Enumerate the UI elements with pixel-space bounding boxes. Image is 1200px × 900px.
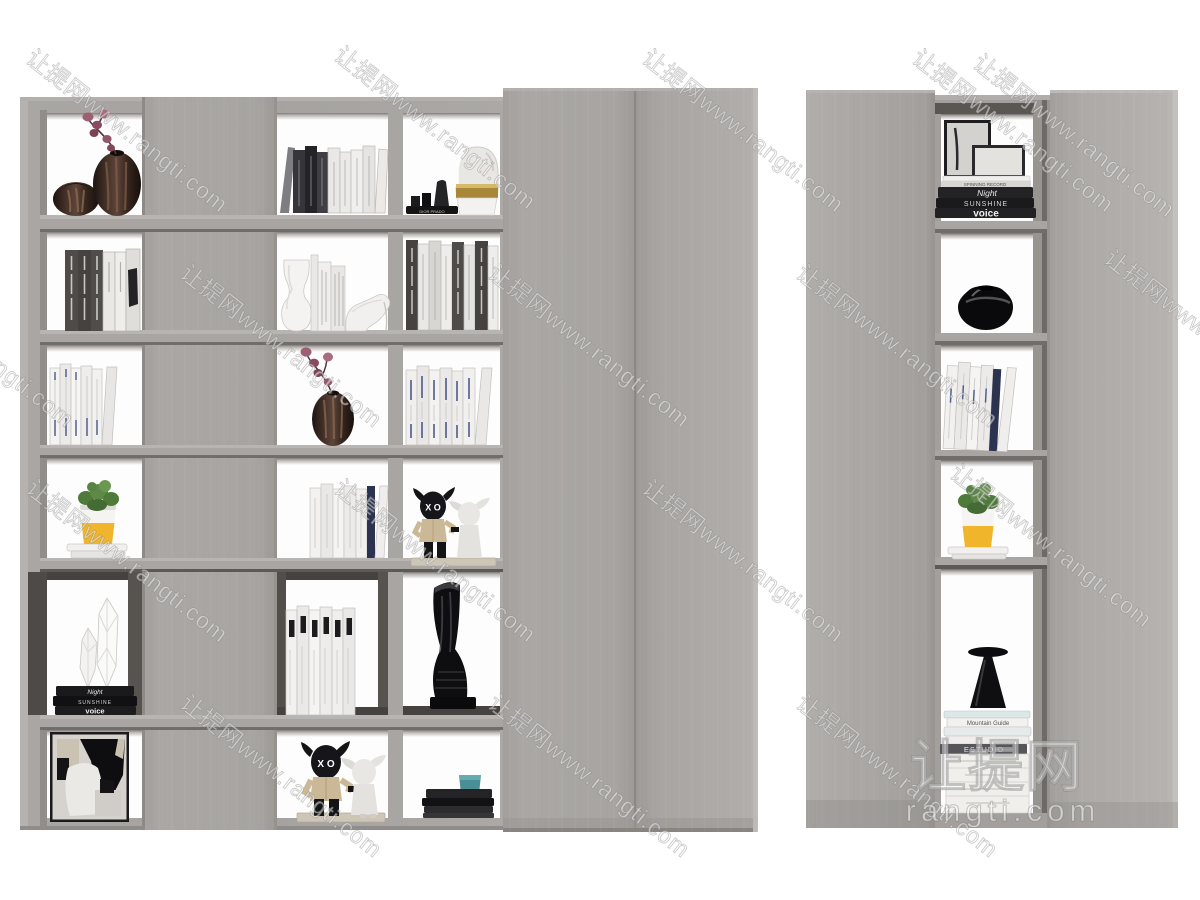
svg-text:DIOR PRADO: DIOR PRADO (419, 209, 444, 214)
svg-text:SUNSHINE: SUNSHINE (964, 201, 1008, 208)
svg-text:Mountain Guide: Mountain Guide (967, 721, 1010, 727)
svg-text:Night: Night (977, 188, 997, 198)
svg-text:voice: voice (85, 707, 104, 716)
svg-text:Night: Night (87, 689, 103, 696)
svg-text:X O: X O (317, 759, 334, 770)
svg-text:SPINNING RECORD: SPINNING RECORD (964, 182, 1007, 187)
svg-text:X O: X O (425, 503, 441, 513)
svg-text:rangti.com: rangti.com (906, 793, 1101, 828)
svg-text:voice: voice (973, 209, 999, 220)
svg-text:让提网: 让提网 (910, 735, 1084, 798)
svg-text:SUNSHINE: SUNSHINE (78, 700, 112, 706)
